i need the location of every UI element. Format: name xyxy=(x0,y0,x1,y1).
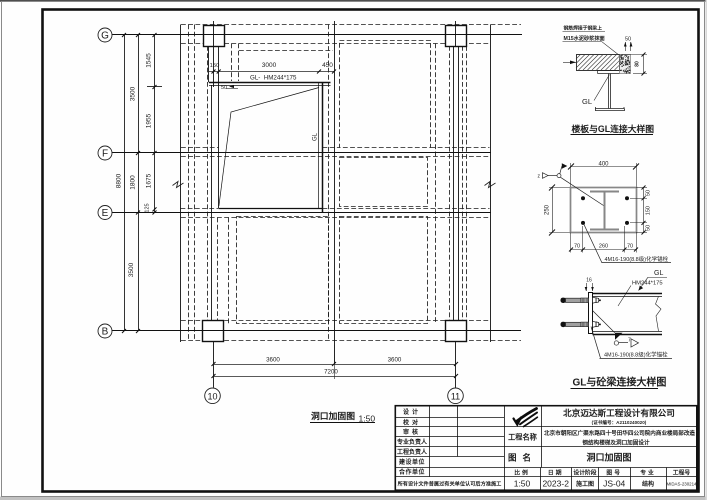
svg-text:校对: 校对 xyxy=(403,418,421,426)
svg-text:GL- HM244*175: GL- HM244*175 xyxy=(250,75,297,82)
svg-text:11: 11 xyxy=(451,391,460,401)
svg-text:图号: 图号 xyxy=(606,469,622,477)
svg-text:工程负责人: 工程负责人 xyxy=(397,448,428,456)
svg-text:3000: 3000 xyxy=(262,62,277,69)
svg-text:专业: 专业 xyxy=(640,469,656,477)
svg-text:日期: 日期 xyxy=(548,469,564,477)
svg-text:50: 50 xyxy=(221,85,227,91)
svg-text:专业负责人: 专业负责人 xyxy=(397,438,428,446)
svg-text:4M16-190(8.8级)化学锚栓: 4M16-190(8.8级)化学锚栓 xyxy=(604,351,668,359)
svg-text:1545: 1545 xyxy=(146,53,153,68)
svg-text:洞口加固图: 洞口加固图 xyxy=(311,410,355,421)
svg-text:MIDAS-230214: MIDAS-230214 xyxy=(666,482,697,487)
svg-text:B: B xyxy=(102,327,109,338)
svg-text:钢结构楼梯及洞口加固设计: 钢结构楼梯及洞口加固设计 xyxy=(582,438,650,446)
svg-text:50: 50 xyxy=(625,37,631,43)
svg-text:150: 150 xyxy=(646,206,652,215)
svg-text:审核: 审核 xyxy=(403,428,421,436)
svg-text:北京迈达斯工程设计有限公司: 北京迈达斯工程设计有限公司 xyxy=(563,407,675,418)
svg-text:1:50: 1:50 xyxy=(514,479,531,489)
svg-text:10: 10 xyxy=(207,391,217,401)
svg-text:8800: 8800 xyxy=(116,173,123,188)
svg-text:1955: 1955 xyxy=(146,113,153,128)
svg-text:建设单位: 建设单位 xyxy=(399,458,425,466)
svg-text:16: 16 xyxy=(586,278,592,284)
svg-text:图名: 图名 xyxy=(508,453,537,463)
svg-text:工程号: 工程号 xyxy=(673,469,691,477)
svg-text:400: 400 xyxy=(598,161,609,167)
svg-text:125: 125 xyxy=(145,203,151,212)
svg-text:设计阶段: 设计阶段 xyxy=(573,469,596,477)
svg-text:洞口加固图: 洞口加固图 xyxy=(586,452,631,463)
svg-text:70: 70 xyxy=(627,244,633,250)
svg-text:150: 150 xyxy=(210,63,220,69)
svg-text:GL: GL xyxy=(313,132,319,141)
svg-text:3600: 3600 xyxy=(388,357,402,364)
svg-text:钢筋焊接于钢梁上: 钢筋焊接于钢梁上 xyxy=(564,25,603,32)
svg-text:250: 250 xyxy=(545,204,551,215)
svg-text:设计: 设计 xyxy=(403,408,421,416)
svg-text:M15水泥砂浆抹面: M15水泥砂浆抹面 xyxy=(564,34,605,42)
svg-text:JS-04: JS-04 xyxy=(603,479,625,489)
svg-text:(证书编号：A2110240020): (证书编号：A2110240020) xyxy=(592,419,647,426)
svg-text:4M16-190(8.8级)化学锚栓: 4M16-190(8.8级)化学锚栓 xyxy=(605,255,669,263)
svg-text:结构: 结构 xyxy=(642,480,654,488)
svg-text:GL与砼梁连接大样图: GL与砼梁连接大样图 xyxy=(573,376,667,389)
svg-text:HM244*175: HM244*175 xyxy=(632,281,663,287)
svg-text:G: G xyxy=(101,31,109,42)
svg-text:GL: GL xyxy=(582,97,592,106)
svg-text:70: 70 xyxy=(574,244,580,250)
svg-text:50: 50 xyxy=(646,190,652,196)
svg-text:E: E xyxy=(102,208,109,219)
svg-text:2023-2: 2023-2 xyxy=(542,479,569,489)
svg-text:3500: 3500 xyxy=(128,262,135,277)
svg-text:工程名称: 工程名称 xyxy=(508,433,538,442)
svg-text:施工图: 施工图 xyxy=(576,480,594,488)
svg-text:合作单位: 合作单位 xyxy=(399,468,425,476)
svg-text:3600: 3600 xyxy=(266,357,280,364)
svg-text:7200: 7200 xyxy=(324,369,338,376)
svg-text:北京市朝阳区广渠东路四十号田华四公司院内商业楼局部改造: 北京市朝阳区广渠东路四十号田华四公司院内商业楼局部改造 xyxy=(544,429,695,437)
svg-text:50: 50 xyxy=(646,225,652,231)
svg-text:80: 80 xyxy=(635,61,641,67)
svg-text:7: 7 xyxy=(628,338,631,344)
svg-text:1800: 1800 xyxy=(130,175,137,190)
svg-text:450: 450 xyxy=(322,62,333,69)
svg-text:F: F xyxy=(102,149,108,160)
svg-text:所有设计文件普属过有关单位认可后方准施工: 所有设计文件普属过有关单位认可后方准施工 xyxy=(398,480,503,488)
svg-text:1675: 1675 xyxy=(146,173,153,188)
svg-text:260: 260 xyxy=(599,244,608,250)
svg-text:楼板与GL连接大样图: 楼板与GL连接大样图 xyxy=(572,123,655,134)
svg-text:3500: 3500 xyxy=(130,86,137,101)
svg-text:比例: 比例 xyxy=(514,469,530,477)
svg-text:GL: GL xyxy=(654,270,663,277)
